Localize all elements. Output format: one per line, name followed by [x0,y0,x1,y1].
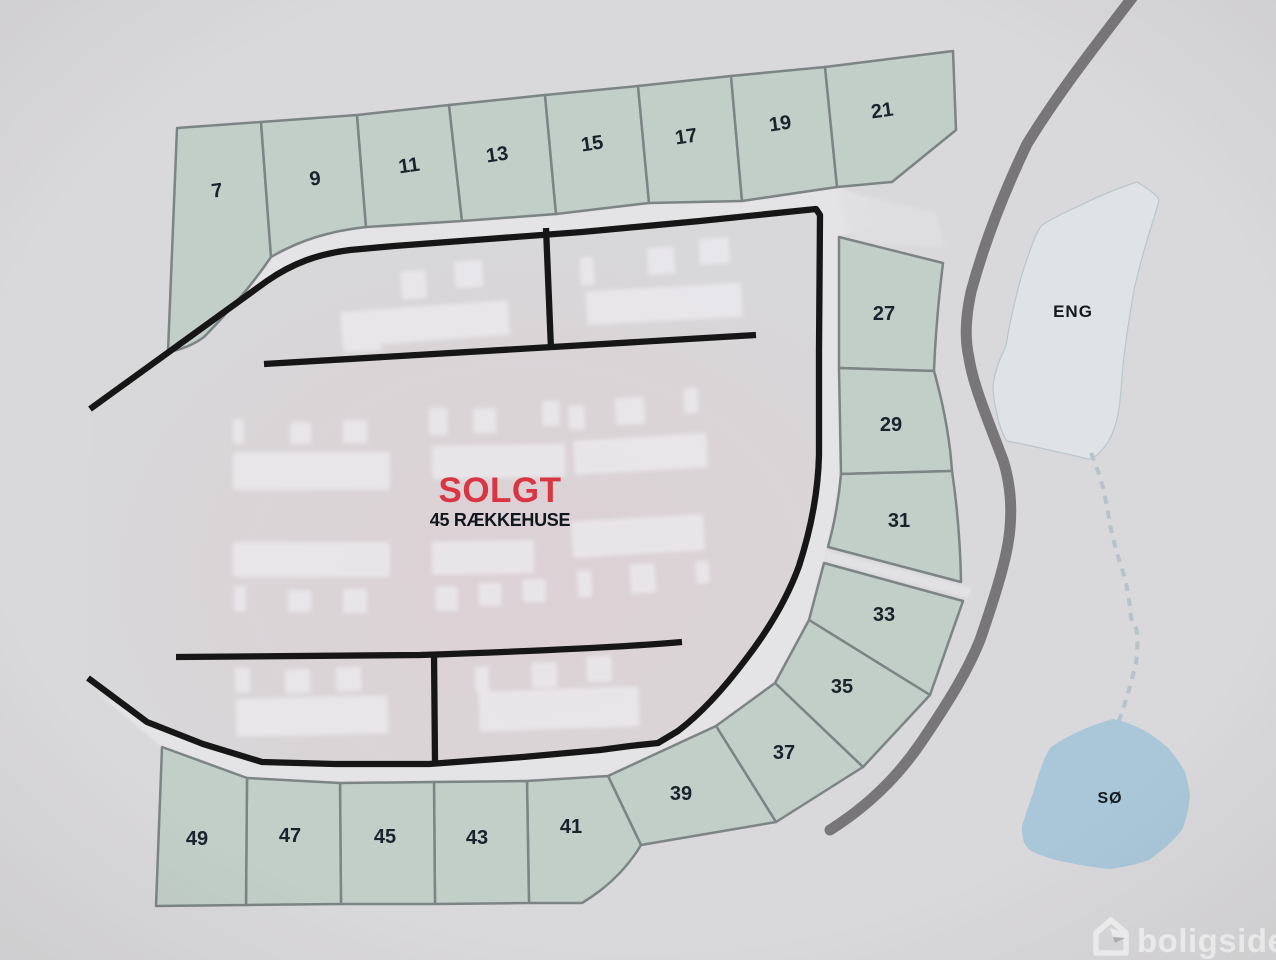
svg-text:boligsiden: boligsiden [1137,922,1276,959]
